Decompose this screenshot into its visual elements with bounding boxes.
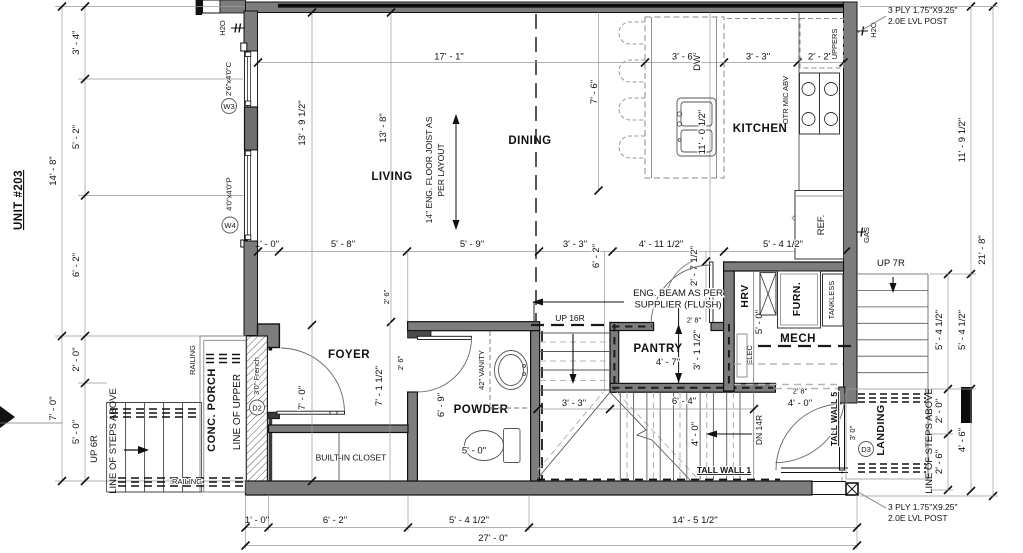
svg-text:2' 8": 2' 8" xyxy=(687,316,702,325)
svg-text:5' - 4 1/2": 5' - 4 1/2" xyxy=(763,239,803,250)
svg-text:SUPPLIER (FLUSH): SUPPLIER (FLUSH) xyxy=(634,300,721,311)
svg-text:5' - 4 1/2": 5' - 4 1/2" xyxy=(449,515,489,526)
svg-text:3 PLY 1.75"X9.25": 3 PLY 1.75"X9.25" xyxy=(888,502,958,512)
svg-text:6' - 9": 6' - 9" xyxy=(436,393,447,417)
svg-text:2' 6": 2' 6" xyxy=(382,289,391,304)
svg-text:KITCHEN: KITCHEN xyxy=(733,123,788,135)
svg-text:4' - 0": 4' - 0" xyxy=(690,422,701,446)
svg-text:LANDING: LANDING xyxy=(875,404,887,455)
svg-text:ENG. BEAM AS PER: ENG. BEAM AS PER xyxy=(633,288,723,299)
svg-text:14' - 5 1/2": 14' - 5 1/2" xyxy=(672,515,717,526)
svg-text:REF.: REF. xyxy=(816,215,827,236)
svg-text:UNIT #203: UNIT #203 xyxy=(13,170,25,230)
svg-text:5' - 4 1/2": 5' - 4 1/2" xyxy=(957,310,968,350)
svg-text:5' - 8": 5' - 8" xyxy=(331,239,355,250)
svg-text:TANKLESS: TANKLESS xyxy=(827,281,836,320)
svg-text:2.0E LVL POST: 2.0E LVL POST xyxy=(888,16,948,26)
svg-text:TALL WALL 1: TALL WALL 1 xyxy=(697,465,752,475)
svg-text:DINING: DINING xyxy=(508,135,551,147)
svg-text:DW: DW xyxy=(692,55,703,71)
svg-text:3' - 4": 3' - 4" xyxy=(71,31,82,55)
svg-text:PER LAYOUT: PER LAYOUT xyxy=(436,143,446,196)
svg-text:6' - 2": 6' - 2" xyxy=(591,244,602,268)
svg-text:3' - 3": 3' - 3" xyxy=(563,239,587,250)
svg-text:27' - 0": 27' - 0" xyxy=(478,533,507,544)
svg-text:UP 6R: UP 6R xyxy=(89,435,100,463)
svg-text:5' - 0": 5' - 0" xyxy=(71,420,82,444)
svg-text:HRV: HRV xyxy=(739,284,751,307)
svg-text:PANTRY: PANTRY xyxy=(634,343,683,355)
svg-text:LINE OF STEPS ABOVE: LINE OF STEPS ABOVE xyxy=(108,388,119,494)
svg-text:H2O: H2O xyxy=(869,22,878,38)
svg-text:6' - 2": 6' - 2" xyxy=(323,515,347,526)
svg-text:4'0"x4'0"P: 4'0"x4'0"P xyxy=(225,177,234,211)
svg-text:5' - 4 1/2": 5' - 4 1/2" xyxy=(934,310,945,350)
svg-text:7' - 6": 7' - 6" xyxy=(589,80,600,104)
svg-text:D2: D2 xyxy=(252,404,262,413)
svg-text:3' - 3": 3' - 3" xyxy=(562,398,586,409)
svg-text:GAS: GAS xyxy=(862,227,871,243)
svg-text:14" ENG. FLOOR JOIST AS: 14" ENG. FLOOR JOIST AS xyxy=(424,116,434,223)
svg-text:11' - 9 1/2": 11' - 9 1/2" xyxy=(957,118,968,163)
svg-text:21' - 8": 21' - 8" xyxy=(977,235,988,264)
svg-text:MECH: MECH xyxy=(780,333,816,345)
svg-text:DN 14R: DN 14R xyxy=(754,415,764,445)
svg-text:2' 6": 2' 6" xyxy=(396,355,405,370)
svg-text:6' - 4": 6' - 4" xyxy=(672,396,696,407)
svg-text::RAILING: :RAILING xyxy=(170,477,202,486)
svg-text:2.0E LVL POST: 2.0E LVL POST xyxy=(888,513,948,523)
svg-text:FOYER: FOYER xyxy=(328,349,370,361)
svg-text:13' - 8": 13' - 8" xyxy=(378,113,389,142)
svg-text:BUILT-IN CLOSET: BUILT-IN CLOSET xyxy=(316,453,387,463)
svg-text:3' 0": 3' 0" xyxy=(848,425,857,440)
svg-text:3'0" French: 3'0" French xyxy=(252,357,261,395)
svg-text:2'6"x4'0"C: 2'6"x4'0"C xyxy=(224,61,233,96)
svg-text:2' 8": 2' 8" xyxy=(793,387,808,396)
svg-text:2' - 6": 2' - 6" xyxy=(934,450,945,474)
svg-text:7' - 0": 7' - 0" xyxy=(48,396,59,420)
svg-text:5' - 9": 5' - 9" xyxy=(460,239,484,250)
svg-text:2' - 0": 2' - 0" xyxy=(934,399,945,423)
svg-text:7' - 1 1/2": 7' - 1 1/2" xyxy=(374,366,385,406)
svg-text:1' - 0": 1' - 0" xyxy=(255,239,279,250)
svg-text:W4: W4 xyxy=(224,221,235,230)
svg-text:UP 7R: UP 7R xyxy=(877,258,905,269)
svg-text:4' - 7": 4' - 7" xyxy=(656,357,680,368)
svg-text:W3: W3 xyxy=(223,102,234,111)
svg-text:D3: D3 xyxy=(861,445,871,454)
svg-text:5' - 2": 5' - 2" xyxy=(71,125,82,149)
svg-text:UPPERS: UPPERS xyxy=(830,29,839,60)
svg-text:LINE OF UPPER: LINE OF UPPER xyxy=(232,374,243,450)
svg-text:17' - 1": 17' - 1" xyxy=(434,52,463,63)
svg-text:14' - 8": 14' - 8" xyxy=(48,156,59,185)
svg-text:CONC. PORCH: CONC. PORCH xyxy=(206,368,218,452)
svg-text:3 PLY 1.75"X9.25": 3 PLY 1.75"X9.25" xyxy=(888,5,958,15)
svg-text:FURN.: FURN. xyxy=(791,282,803,317)
svg-text:OTR MIC ABV: OTR MIC ABV xyxy=(781,76,790,124)
svg-text:11' - 0 1/2": 11' - 0 1/2" xyxy=(697,110,708,155)
svg-text:1' - 0": 1' - 0" xyxy=(245,515,269,526)
svg-text:5' - 0": 5' - 0" xyxy=(462,446,486,457)
svg-text:13' - 9 1/2": 13' - 9 1/2" xyxy=(297,100,308,145)
svg-text:6' - 2": 6' - 2" xyxy=(71,253,82,277)
svg-text:2' - 2": 2' - 2" xyxy=(808,52,832,63)
svg-text:4' - 0": 4' - 0" xyxy=(788,398,812,409)
svg-text:POWDER: POWDER xyxy=(454,404,509,416)
svg-text:42" VANITY: 42" VANITY xyxy=(477,350,486,390)
svg-text:3' - 1 1/2": 3' - 1 1/2" xyxy=(692,330,703,370)
svg-text:3' - 3": 3' - 3" xyxy=(746,52,770,63)
svg-text:2' - 0": 2' - 0" xyxy=(71,347,82,371)
svg-text:4' - 6": 4' - 6" xyxy=(957,428,968,452)
svg-text:ELEC: ELEC xyxy=(745,345,754,365)
svg-text:LIVING: LIVING xyxy=(371,171,412,183)
svg-text:RAILING: RAILING xyxy=(188,345,197,375)
svg-text:7' - 0": 7' - 0" xyxy=(297,386,308,410)
svg-text:4' - 11 1/2": 4' - 11 1/2" xyxy=(639,239,684,250)
svg-text:H2O: H2O xyxy=(218,20,227,36)
svg-text:TALL WALL 5: TALL WALL 5 xyxy=(829,392,839,447)
svg-text:UP 16R: UP 16R xyxy=(555,313,585,323)
